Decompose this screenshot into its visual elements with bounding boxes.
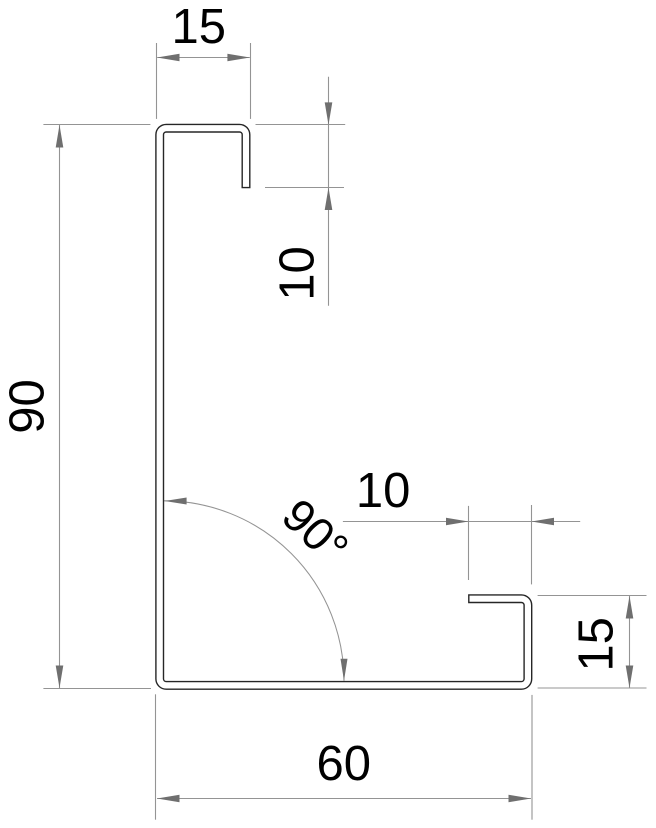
svg-text:10: 10 — [270, 246, 324, 301]
svg-text:10: 10 — [356, 464, 411, 518]
svg-text:15: 15 — [570, 617, 624, 672]
svg-text:60: 60 — [316, 737, 371, 791]
svg-text:15: 15 — [171, 0, 226, 54]
svg-text:90: 90 — [1, 379, 55, 434]
